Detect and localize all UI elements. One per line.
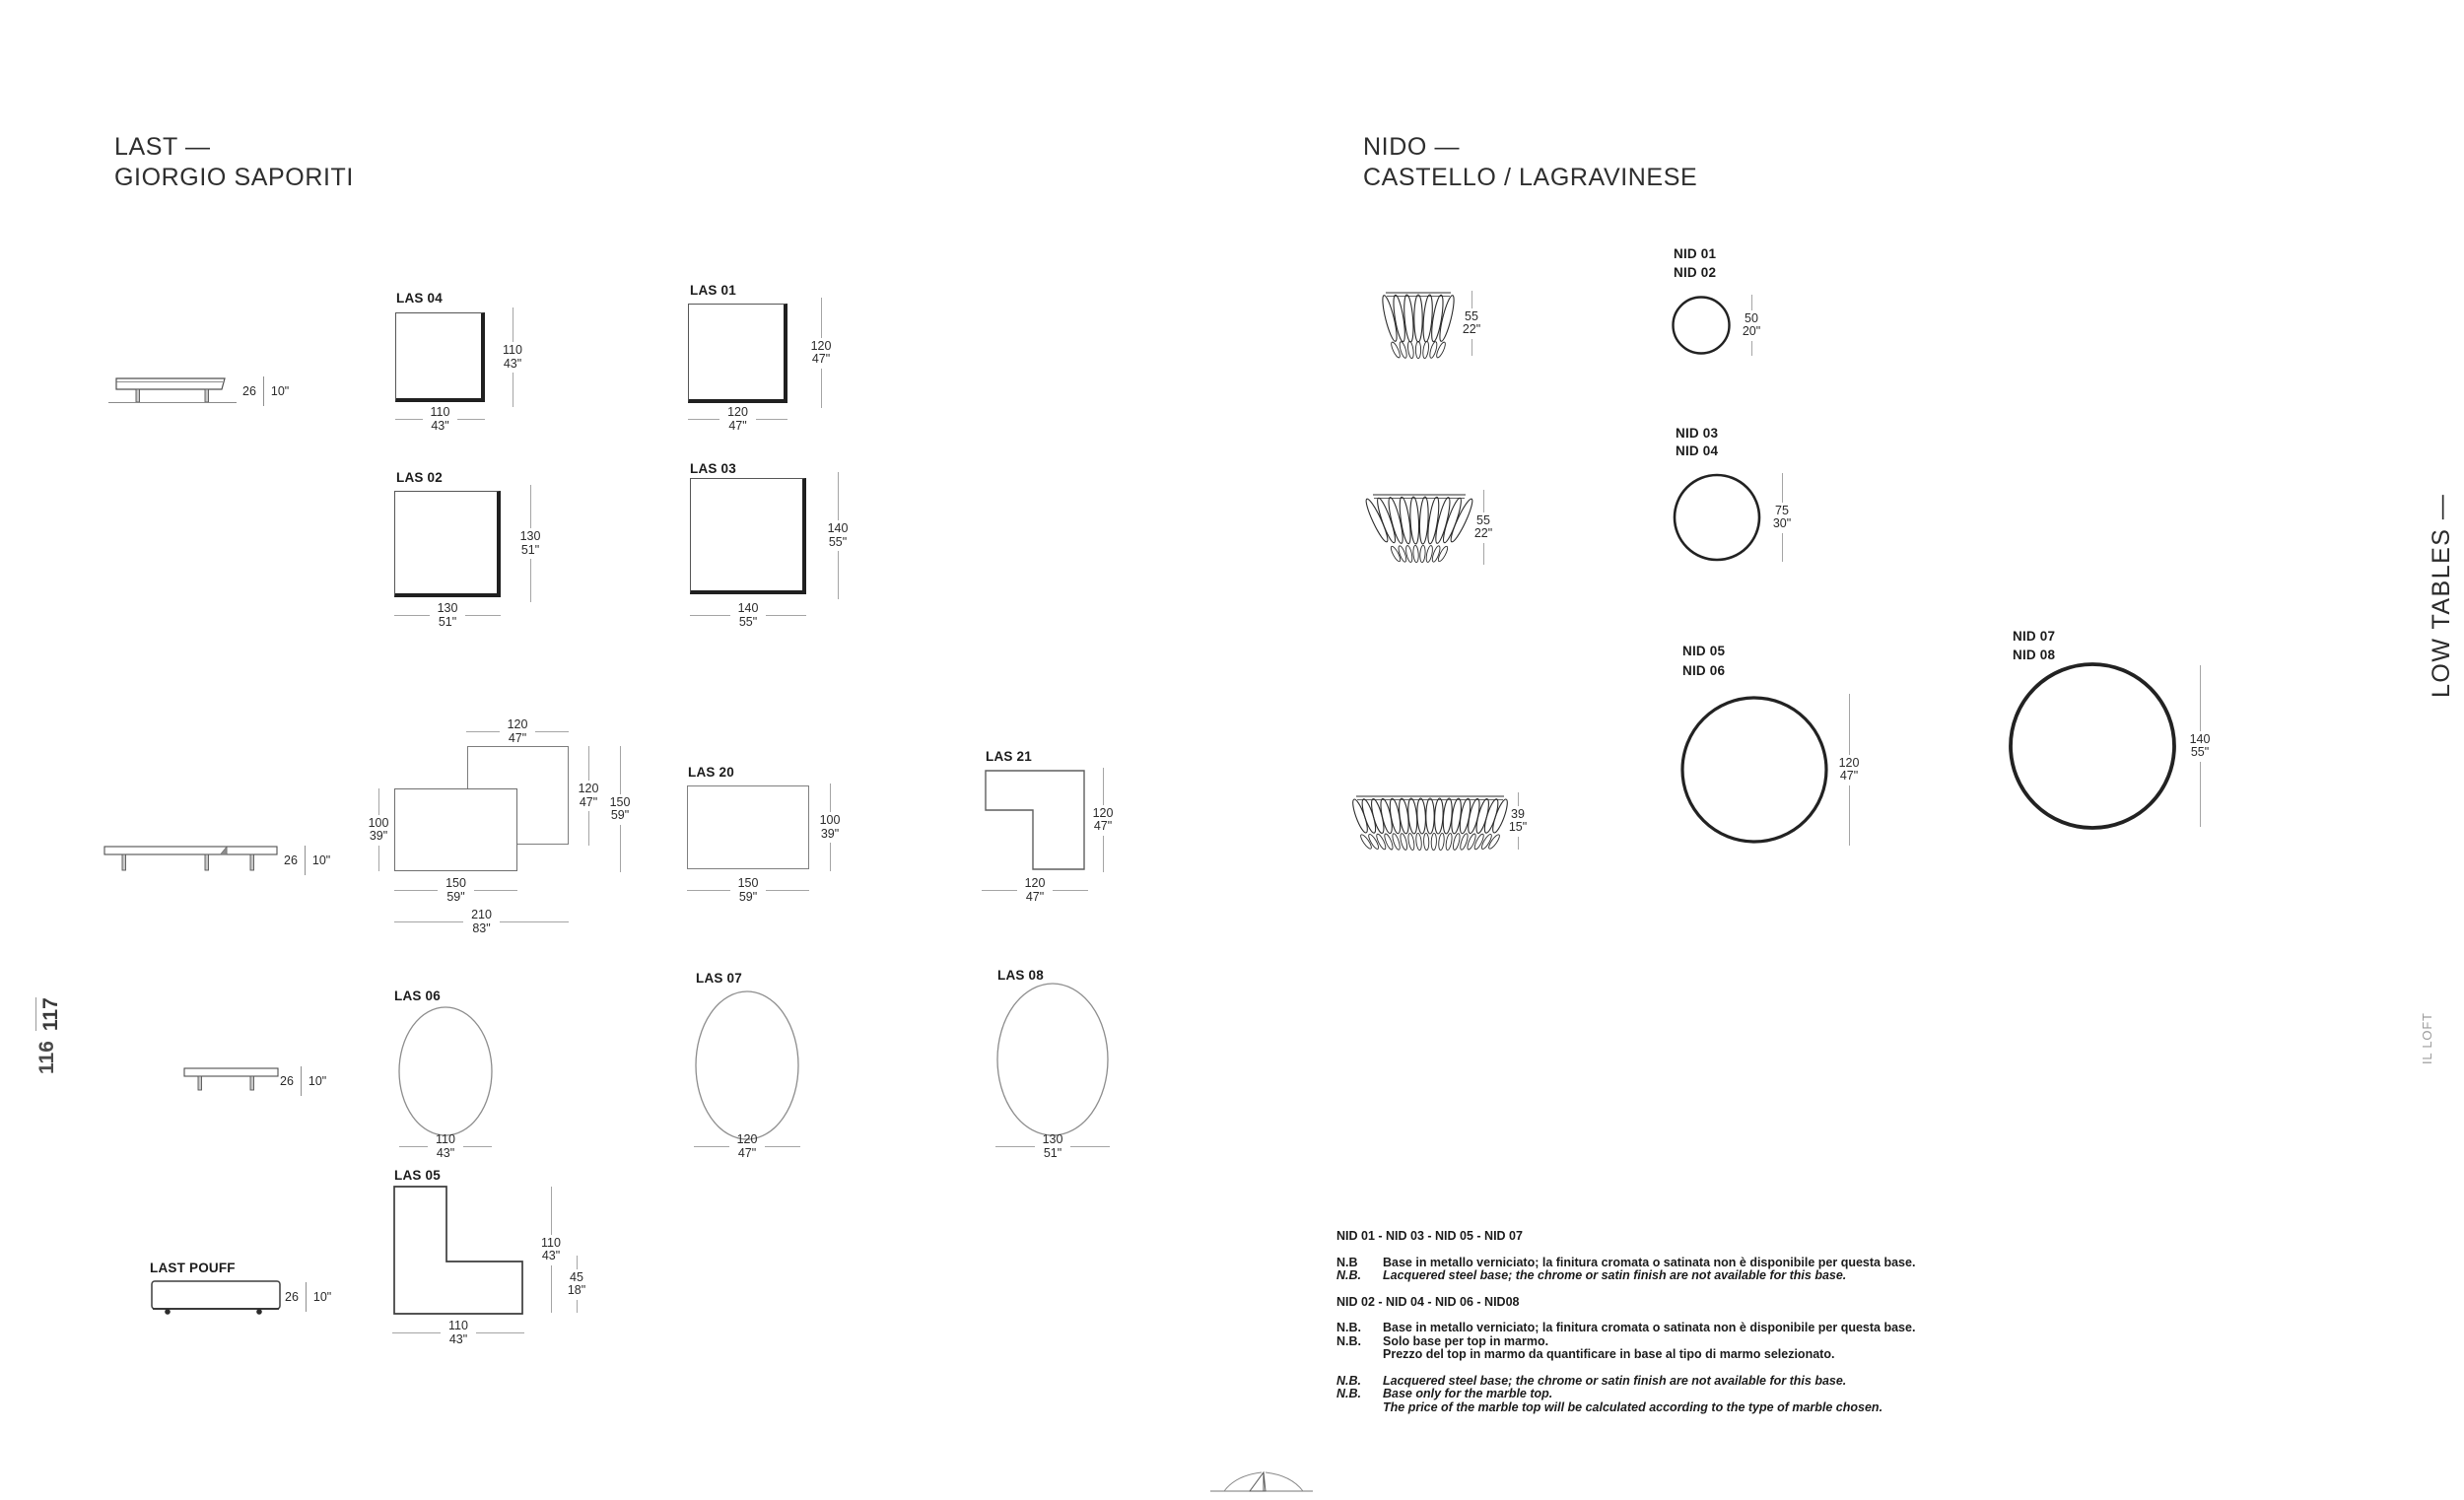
note-label: N.B. — [1336, 1375, 1383, 1389]
dim-line — [694, 1146, 729, 1147]
dim-line — [2200, 762, 2201, 828]
notes-row: N.B.Lacquered steel base; the chrome or … — [1336, 1375, 1987, 1389]
item-label-las-20: LAS 20 — [688, 765, 734, 780]
dim-value: 110 43" — [423, 406, 458, 433]
round-top-view-las-08 — [995, 982, 1112, 1139]
dim-line — [1483, 490, 1484, 512]
composition-front-rect — [394, 788, 517, 871]
category-vertical-text: LOW TABLES — — [2428, 494, 2456, 698]
dim-line — [551, 1265, 552, 1314]
dim-line — [500, 921, 569, 922]
dim-value: 75 30" — [1773, 503, 1791, 533]
note-text: Base in metallo verniciato; la finitura … — [1383, 1257, 1915, 1270]
dim-value: 110 43" — [428, 1133, 463, 1160]
dim-inch: 10" — [313, 1290, 331, 1304]
square-top-view-las-03 — [690, 478, 806, 594]
last-side-view-3 — [181, 1062, 284, 1096]
last-side-view-2 — [103, 841, 282, 880]
item-label-las-21: LAS 21 — [986, 749, 1032, 764]
dim-line — [830, 784, 831, 812]
dim-line — [551, 1187, 552, 1235]
last-title-line2: GIORGIO SAPORITI — [114, 163, 354, 193]
item-label-nid-07: NID 07 — [2013, 629, 2055, 644]
round-top-view-las-06 — [397, 1005, 494, 1137]
dim-line — [513, 307, 513, 342]
basket-side-view-nid-05 — [1354, 792, 1506, 852]
dim-height-side-3: 2610" — [280, 1064, 326, 1098]
note-text: Base in metallo verniciato; la finitura … — [1383, 1322, 1915, 1335]
dim-value: 150 59" — [730, 877, 767, 904]
item-label-nid-03: NID 03 — [1676, 426, 1718, 441]
notes-row: N.B.Base in metallo verniciato; la finit… — [1336, 1322, 1987, 1335]
dim-cm: 26 — [284, 853, 298, 867]
item-label-las-01: LAS 01 — [690, 283, 736, 298]
dim-line — [688, 419, 719, 420]
dim-value: 210 83" — [463, 909, 500, 935]
item-label-las-04: LAS 04 — [396, 291, 443, 306]
dim-composition-top: 120 47" — [466, 718, 569, 745]
dim-line — [399, 1146, 428, 1147]
dim-line — [620, 746, 621, 794]
dim-inch: 10" — [312, 853, 330, 867]
round-top-view-las-07 — [694, 989, 802, 1143]
basket-side-view-nid-01 — [1384, 289, 1453, 360]
note-text: Lacquered steel base; the chrome or sati… — [1383, 1269, 1846, 1283]
nido-title-line1: NIDO — — [1363, 132, 1697, 163]
dim-value: 150 59" — [610, 794, 631, 825]
dim-line — [394, 615, 430, 616]
item-label-las-02: LAS 02 — [396, 470, 443, 485]
catalog-page: LAST — GIORGIO SAPORITI NIDO — CASTELLO … — [0, 0, 2464, 1500]
notes-row: The price of the marble top will be calc… — [1336, 1401, 1987, 1415]
dim-line — [821, 298, 822, 338]
dim-separator — [263, 376, 264, 406]
dim-height-las-20: 100 39" — [808, 784, 852, 871]
dim-line — [1849, 785, 1850, 847]
dim-separator — [306, 1282, 307, 1312]
dim-line — [392, 1332, 441, 1333]
l-shape-top-view-las-05 — [390, 1183, 528, 1321]
dim-value: 150 59" — [438, 877, 474, 904]
note-label: N.B — [1336, 1257, 1383, 1270]
nido-title-line2: CASTELLO / LAGRAVINESE — [1363, 163, 1697, 193]
dim-line — [1518, 837, 1519, 851]
note-label: N.B. — [1336, 1269, 1383, 1283]
last-section-title: LAST — GIORGIO SAPORITI — [114, 132, 354, 193]
dim-cm: 26 — [285, 1290, 299, 1304]
dim-line — [690, 615, 730, 616]
dim-value: 120 47" — [811, 338, 832, 369]
note-text: Lacquered steel base; the chrome or sati… — [1383, 1375, 1846, 1389]
dim-line — [588, 746, 589, 781]
dim-height-last-pouff: 2610" — [285, 1280, 331, 1314]
dim-separator — [305, 846, 306, 875]
dim-line — [530, 485, 531, 528]
dim-width-las-07: 120 47" — [694, 1133, 800, 1160]
notes-block: NID 01 - NID 03 - NID 05 - NID 07N.BBase… — [1336, 1230, 1987, 1414]
basket-side-view-nid-03 — [1371, 491, 1468, 564]
dim-line — [766, 890, 809, 891]
dim-separator — [301, 1066, 302, 1096]
dim-height-side-2: 2610" — [284, 844, 330, 877]
dim-line — [395, 419, 423, 420]
dim-value: 140 55" — [730, 602, 767, 629]
note-text: The price of the marble top will be calc… — [1383, 1401, 1882, 1415]
dim-line — [530, 559, 531, 602]
dim-width-las-04: 110 43" — [395, 406, 485, 433]
dim-value: 45 18" — [568, 1269, 585, 1300]
page-number-right: 117 — [35, 997, 63, 1031]
dim-line — [838, 472, 839, 520]
dim-value: 110 43" — [503, 342, 522, 373]
dim-line — [1782, 473, 1783, 503]
dim-height-las-04: 110 43" — [491, 307, 534, 407]
dim-line — [830, 843, 831, 871]
dim-line — [588, 811, 589, 846]
dim-value: 140 55" — [2190, 731, 2211, 762]
dim-value: 55 22" — [1474, 512, 1492, 543]
dim-diameter-nid-04: 75 30" — [1760, 473, 1804, 562]
last-pouff-side-view — [149, 1278, 283, 1318]
item-label-las-06: LAS 06 — [394, 989, 441, 1003]
dim-line — [513, 373, 513, 407]
note-label: N.B. — [1336, 1335, 1383, 1349]
dim-line — [465, 615, 501, 616]
dim-line — [620, 825, 621, 873]
note-text: Solo base per top in marmo. — [1383, 1335, 1548, 1349]
dim-line — [1472, 339, 1472, 357]
dim-width-las-03: 140 55" — [690, 602, 806, 629]
dim-value: 120 47" — [500, 718, 536, 745]
dim-line — [1751, 295, 1752, 310]
dim-line — [577, 1256, 578, 1269]
dim-height-nid-05: 39 15" — [1496, 792, 1540, 850]
dim-value: 100 39" — [820, 812, 841, 843]
dim-width-las-06: 110 43" — [399, 1133, 492, 1160]
dim-inner-height-las-05: 45 18" — [555, 1256, 598, 1313]
dim-line — [687, 890, 730, 891]
last-side-view-1 — [103, 369, 242, 408]
item-label-las-05: LAS 05 — [394, 1168, 441, 1183]
dim-value: 120 47" — [1839, 755, 1860, 785]
dim-line — [1053, 890, 1088, 891]
dim-line — [838, 551, 839, 599]
notes-row: N.B.Lacquered steel base; the chrome or … — [1336, 1269, 1987, 1283]
dim-value: 130 51" — [520, 528, 541, 559]
dim-value: 130 51" — [1035, 1133, 1071, 1160]
dim-line — [995, 1146, 1035, 1147]
note-label — [1336, 1401, 1383, 1415]
dim-line — [577, 1300, 578, 1314]
dim-value: 55 22" — [1463, 308, 1480, 339]
dim-inch: 10" — [308, 1074, 326, 1088]
dim-inch: 10" — [271, 384, 289, 398]
dim-height-las-21: 120 47" — [1081, 768, 1125, 872]
brand-vertical-text: IL LOFT — [2420, 1012, 2434, 1064]
dim-line — [476, 1332, 524, 1333]
dim-height-side-1: 2610" — [242, 375, 289, 408]
dim-height-nid-03: 55 22" — [1462, 490, 1505, 565]
note-text: Prezzo del top in marmo da quantificare … — [1383, 1348, 1834, 1362]
dim-line — [474, 890, 517, 891]
dim-value: 120 47" — [719, 406, 756, 433]
dim-line — [378, 846, 379, 872]
dim-line — [463, 1146, 492, 1147]
dim-line — [1518, 792, 1519, 806]
dim-line — [1103, 836, 1104, 873]
dim-value: 100 39" — [369, 815, 389, 846]
item-label-las-07: LAS 07 — [696, 971, 742, 986]
round-top-view-nid-06 — [1679, 695, 1829, 845]
notes-header: NID 01 - NID 03 - NID 05 - NID 07 — [1336, 1230, 1987, 1244]
dim-value: 110 43" — [441, 1320, 476, 1346]
note-label — [1336, 1348, 1383, 1362]
dim-value: 120 47" — [729, 1133, 766, 1160]
dim-value: 120 47" — [1017, 877, 1054, 904]
item-label-nid-05: NID 05 — [1682, 644, 1725, 658]
dim-diameter-nid-08: 140 55" — [2178, 665, 2222, 827]
dim-line — [756, 419, 787, 420]
dim-width-las-08: 130 51" — [995, 1133, 1110, 1160]
dim-width-las-01: 120 47" — [688, 406, 787, 433]
last-title-line1: LAST — — [114, 132, 354, 163]
l-shape-top-view-las-21 — [982, 767, 1090, 875]
square-top-view-las-02 — [394, 491, 501, 597]
dim-value: 120 47" — [1093, 805, 1114, 836]
dim-height-las-02: 130 51" — [509, 485, 552, 602]
item-label-last-pouff: LAST POUFF — [150, 1261, 236, 1275]
dim-line — [457, 419, 485, 420]
round-top-view-nid-02 — [1670, 294, 1733, 357]
note-label: N.B. — [1336, 1388, 1383, 1401]
dim-value: 50 20" — [1743, 310, 1760, 341]
compass-mark — [1206, 1469, 1317, 1500]
dim-height-nid-01: 55 22" — [1450, 291, 1493, 356]
dim-width-las-05: 110 43" — [392, 1320, 524, 1346]
dim-line — [1070, 1146, 1110, 1147]
notes-row: Prezzo del top in marmo da quantificare … — [1336, 1348, 1987, 1362]
page-numbers-inner: 116 117 — [35, 997, 63, 1074]
notes-row: N.BBase in metallo verniciato; la finitu… — [1336, 1257, 1987, 1270]
item-label-nid-06: NID 06 — [1682, 663, 1725, 678]
dim-line — [1483, 543, 1484, 566]
dim-value: 39 15" — [1509, 806, 1527, 837]
dim-diameter-nid-02: 50 20" — [1730, 295, 1773, 356]
item-label-nid-01: NID 01 — [1674, 246, 1716, 261]
item-label-nid-02: NID 02 — [1674, 265, 1716, 280]
dim-value: 140 55" — [828, 520, 849, 551]
dim-height-las-01: 120 47" — [799, 298, 843, 408]
dim-line — [1103, 768, 1104, 805]
dim-composition-bottom-total: 210 83" — [394, 909, 569, 935]
note-label: N.B. — [1336, 1322, 1383, 1335]
nido-section-title: NIDO — CASTELLO / LAGRAVINESE — [1363, 132, 1697, 193]
dim-line — [821, 369, 822, 409]
dim-line — [1849, 694, 1850, 755]
notes-header: NID 02 - NID 04 - NID 06 - NID08 — [1336, 1296, 1987, 1310]
dim-width-las-02: 130 51" — [394, 602, 501, 629]
dim-cm: 26 — [242, 384, 256, 398]
square-top-view-las-01 — [688, 304, 787, 403]
dim-line — [378, 788, 379, 815]
dim-value: 120 47" — [579, 781, 599, 811]
notes-row: N.B.Base only for the marble top. — [1336, 1388, 1987, 1401]
dim-line — [394, 921, 463, 922]
dim-width-las-20: 150 59" — [687, 877, 809, 904]
dim-line — [766, 615, 806, 616]
square-top-view-las-04 — [395, 312, 485, 402]
dim-composition-outer-right: 150 59" — [598, 746, 642, 872]
dim-width-las-21: 120 47" — [982, 877, 1088, 904]
dim-diameter-nid-06: 120 47" — [1827, 694, 1871, 846]
dim-cm: 26 — [280, 1074, 294, 1088]
note-text: Base only for the marble top. — [1383, 1388, 1552, 1401]
dim-value: 130 51" — [430, 602, 466, 629]
dim-line — [535, 731, 569, 732]
dim-line — [394, 890, 438, 891]
item-label-nid-04: NID 04 — [1676, 443, 1718, 458]
dim-line — [2200, 665, 2201, 731]
dim-line — [466, 731, 500, 732]
dim-line — [1782, 533, 1783, 563]
item-label-las-03: LAS 03 — [690, 461, 736, 476]
dim-line — [982, 890, 1017, 891]
round-top-view-nid-04 — [1672, 472, 1762, 563]
dim-height-las-03: 140 55" — [816, 472, 859, 599]
notes-row: N.B.Solo base per top in marmo. — [1336, 1335, 1987, 1349]
rect-top-view-las-20 — [687, 785, 809, 869]
dim-line — [1472, 291, 1472, 308]
page-number-left: 116 — [35, 1041, 59, 1074]
item-label-nid-08: NID 08 — [2013, 648, 2055, 662]
dim-line — [765, 1146, 800, 1147]
dim-line — [1751, 341, 1752, 357]
item-label-las-08: LAS 08 — [997, 968, 1044, 983]
dim-composition-bottom-front: 150 59" — [394, 877, 517, 904]
round-top-view-nid-08 — [2008, 661, 2177, 831]
